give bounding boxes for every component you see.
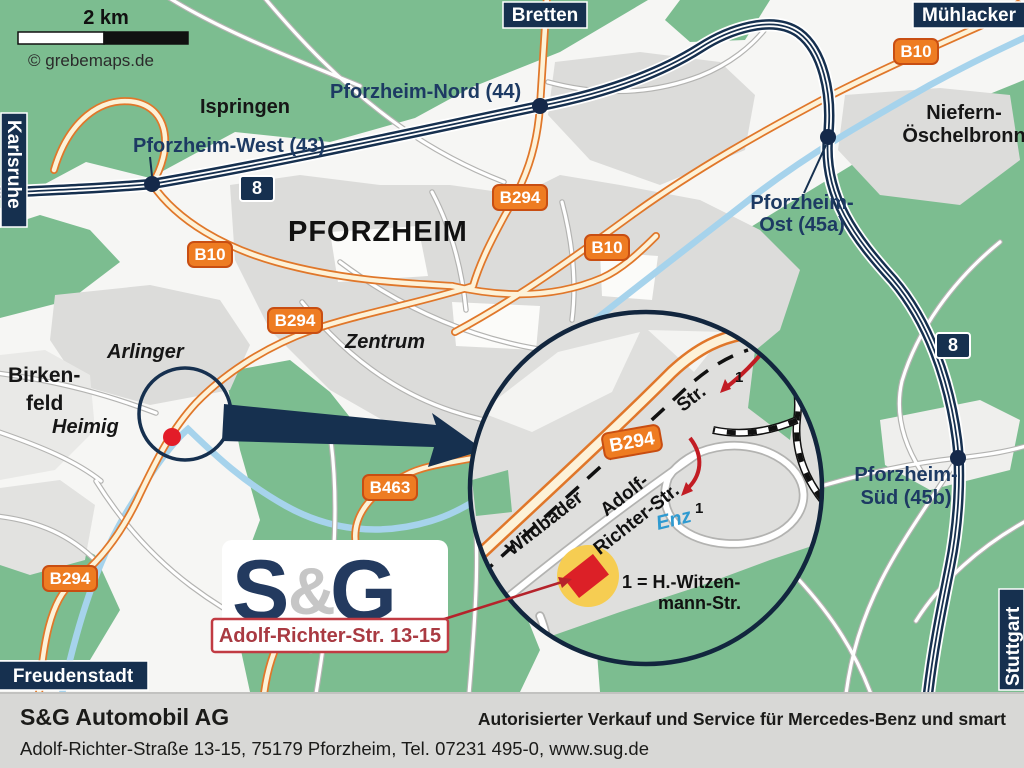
company-address: Adolf-Richter-Straße 13-15, 75179 Pforzh… <box>0 731 1024 760</box>
exit-pforzheim-ost-line1: Pforzheim- <box>750 192 853 214</box>
b294-badge: B294 <box>43 566 97 591</box>
b10-badge-label: B10 <box>900 42 931 61</box>
a8-badge-label: 8 <box>948 335 958 355</box>
b10-badge-label: B10 <box>194 245 225 264</box>
place-arlinger: Arlinger <box>106 341 185 363</box>
b294-badge-label: B294 <box>500 188 541 207</box>
street-marker-1: 1 <box>735 369 743 386</box>
legend-line1: 1 = H.-Witzen- <box>622 572 740 592</box>
junction-dot-west <box>144 176 160 192</box>
footer-bar: S&G Automobil AG Autorisierter Verkauf u… <box>0 692 1024 768</box>
company-name: S&G Automobil AG <box>20 704 229 731</box>
scale-label: 2 km <box>83 7 129 29</box>
b10-badge: B10 <box>894 39 938 64</box>
b463-badge-label: B463 <box>370 478 411 497</box>
place-heimig: Heimig <box>52 416 119 438</box>
place-birkenfeld-line2: feld <box>26 392 63 415</box>
dealer-location-dot <box>163 428 181 446</box>
place-pforzheim: PFORZHEIM <box>288 216 468 248</box>
logo-ampersand: & <box>288 554 336 628</box>
exit-pforzheim-sued-line2: Süd (45b) <box>860 487 951 509</box>
exit-pforzheim-sued-line1: Pforzheim- <box>854 464 957 486</box>
exit-pforzheim-nord: Pforzheim-Nord (44) <box>330 81 521 103</box>
copyright-label: © grebemaps.de <box>28 51 154 70</box>
street-marker-1: 1 <box>695 500 703 517</box>
place-niefern-line2: Öschelbronn <box>902 124 1024 147</box>
place-ispringen: Ispringen <box>200 96 290 118</box>
exit-pforzheim-west: Pforzheim-West (43) <box>133 135 325 157</box>
address-box: Adolf-Richter-Str. 13-15 <box>212 619 448 652</box>
a8-badge-label: 8 <box>252 178 262 198</box>
exit-pforzheim-ost-line2: Ost (45a) <box>759 214 845 236</box>
edge-label-karlsruhe: Karlsruhe <box>3 120 24 209</box>
b294-badge-label: B294 <box>50 569 91 588</box>
map-canvas: 8 8 B10 B10 B10 B294 B294 B294 <box>0 0 1024 692</box>
edge-label-freudenstadt: Freudenstadt <box>13 666 134 687</box>
edge-label-stuttgart: Stuttgart <box>1003 606 1024 686</box>
edge-label-muehlacker: Mühlacker <box>922 5 1017 26</box>
b463-badge: B463 <box>363 475 417 500</box>
place-zentrum: Zentrum <box>344 331 425 353</box>
junction-dot-ost <box>820 129 836 145</box>
a8-badge: 8 <box>240 176 274 201</box>
b294-badge-label: B294 <box>275 311 316 330</box>
b294-badge: B294 <box>268 308 322 333</box>
a8-badge: 8 <box>936 333 970 358</box>
place-birkenfeld-line1: Birken- <box>8 364 80 387</box>
edge-label-bretten: Bretten <box>512 5 579 26</box>
junction-dot-nord <box>532 98 548 114</box>
address-box-label: Adolf-Richter-Str. 13-15 <box>219 625 441 647</box>
location-map-page: 8 8 B10 B10 B10 B294 B294 B294 <box>0 0 1024 768</box>
legend-line2: mann-Str. <box>658 593 741 613</box>
b10-badge-label: B10 <box>591 238 622 257</box>
b10-badge: B10 <box>188 242 232 267</box>
company-tagline: Autorisierter Verkauf und Service für Me… <box>478 709 1006 730</box>
place-niefern-line1: Niefern- <box>926 102 1002 124</box>
b294-badge: B294 <box>493 185 547 210</box>
b10-badge: B10 <box>585 235 629 260</box>
